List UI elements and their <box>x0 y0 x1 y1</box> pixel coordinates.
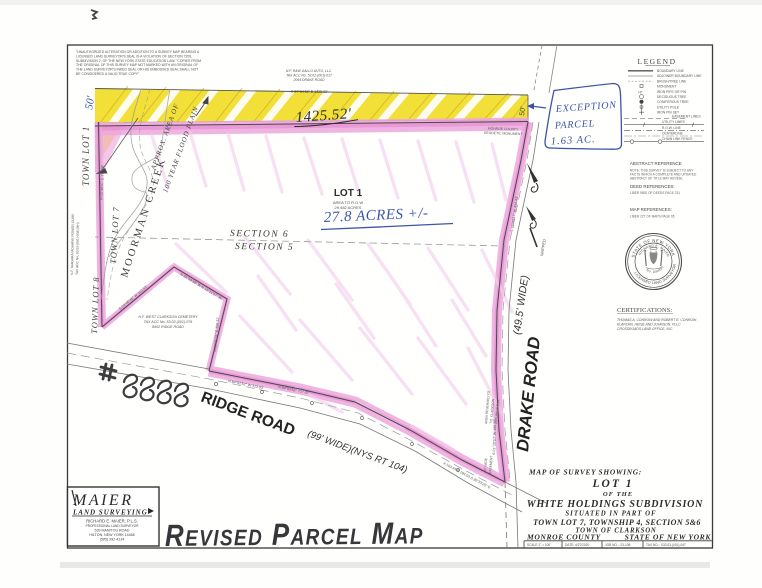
svg-text:LIBER 9892 OF DEEDS PAGE 231: LIBER 9892 OF DEEDS PAGE 231 <box>630 191 680 195</box>
svg-text:SITUATED IN PART OF: SITUATED IN PART OF <box>565 511 656 518</box>
svg-text:KLAFEHN, HEISE AND JOHNSON, PL: KLAFEHN, HEISE AND JOHNSON, PLLC <box>617 323 681 327</box>
svg-text:CHAIN LINK FENCE: CHAIN LINK FENCE <box>662 137 693 141</box>
svg-text:TOWN LOT 7, TOWNSHIP 4, S: TOWN LOT 7, TOWNSHIP 4, SECTION 5&6 <box>533 518 701 527</box>
svg-text:IRON PIPE OR PIN: IRON PIPE OR PIN <box>657 90 687 94</box>
svg-text:THE ORIGINAL OF THIS SURVEY MA: THE ORIGINAL OF THIS SURVEY MAP NOT MARK… <box>76 63 198 67</box>
svg-text:MAP OF SURVEY SHOWING:: MAP OF SURVEY SHOWING: <box>528 468 642 477</box>
svg-text:PARCEL: PARCEL <box>554 118 596 131</box>
svg-text:50': 50' <box>83 95 97 111</box>
svg-text:BRUSH/TREE LINE: BRUSH/TREE LINE <box>657 79 687 83</box>
svg-text:DATE: 4/27/2020: DATE: 4/27/2020 <box>565 543 589 547</box>
svg-text:539 MANITOU ROAD: 539 MANITOU ROAD <box>95 529 130 533</box>
svg-text:8602 RIDGE ROAD: 8602 RIDGE ROAD <box>152 325 184 329</box>
svg-text:ABSTRACT REFERENCE: ABSTRACT REFERENCE <box>630 161 682 166</box>
svg-text:EASEMENT LINES: EASEMENT LINES <box>672 114 701 118</box>
svg-text:BOUNDARY LINE: BOUNDARY LINE <box>657 69 685 73</box>
svg-text:TAX NO. : 033.03-(001)-047: TAX NO. : 033.03-(001)-047 <box>646 543 686 547</box>
svg-text:LAND SURVEYING: LAND SURVEYING <box>72 509 148 517</box>
svg-text:LICENSED LAND SURVEYOR'S SEAL: LICENSED LAND SURVEYOR'S SEAL IS A VIOLA… <box>76 54 192 58</box>
svg-text:2064 DRAKE ROAD: 2064 DRAKE ROAD <box>293 78 325 82</box>
svg-text:THOMAS A. CONROW AND ROBERT E.: THOMAS A. CONROW AND ROBERT E. CONROW , <box>617 318 698 322</box>
svg-text:DECIDUOUS TREE: DECIDUOUS TREE <box>657 95 687 99</box>
svg-text:TOWN LOT 8: TOWN LOT 8 <box>89 276 101 334</box>
svg-text:S 87°54'48" E 1425.52': S 87°54'48" E 1425.52' <box>291 90 328 95</box>
svg-text:MONROE COUNTY: MONROE COUNTY <box>526 533 602 542</box>
svg-text:RICHARD E. MAIER, P.L.S.: RICHARD E. MAIER, P.L.S. <box>86 519 138 524</box>
svg-text:LIBER 227 OF MAPS PAGE 65: LIBER 227 OF MAPS PAGE 65 <box>630 215 675 219</box>
svg-text:BE CONSIDERED A VALID TRUE COP: BE CONSIDERED A VALID TRUE COPY" <box>76 72 140 76</box>
svg-text:UTILITY POLE: UTILITY POLE <box>657 105 680 109</box>
svg-text:I-P: I-P <box>638 91 643 95</box>
svg-text:PROFESSIONAL LAND SURVEYOR: PROFESSIONAL LAND SURVEYOR <box>86 524 139 528</box>
svg-text:SCALE 1" = 100': SCALE 1" = 100' <box>527 543 551 547</box>
svg-text:N.F. WEST CLARKSON CEMETERY: N.F. WEST CLARKSON CEMETERY <box>138 315 198 319</box>
svg-text:(585) 392-4134: (585) 392-4134 <box>100 538 125 542</box>
svg-text:ABSTRACT OF TITLE MAY REVEAL.: ABSTRACT OF TITLE MAY REVEAL. <box>630 177 684 181</box>
svg-text:SECTION 5: SECTION 5 <box>235 242 294 253</box>
svg-text:TAX ACC No. 53.02-(001)-017: TAX ACC No. 53.02-(001)-017 <box>286 74 332 78</box>
svg-text:TAX ACC No. 53.02-(001)-076: TAX ACC No. 53.02-(001)-076 <box>144 320 193 324</box>
svg-text:MONUMENT: MONUMENT <box>657 85 676 89</box>
svg-text:OF THE: OF THE <box>603 491 633 498</box>
svg-text:CERTIFICATIONS:: CERTIFICATIONS: <box>617 307 673 314</box>
svg-text:CENTERLINE: CENTERLINE <box>662 132 684 136</box>
svg-text:"UNAUTHORIZED ALTERATION OR AD: "UNAUTHORIZED ALTERATION OR ADDITION TO … <box>76 50 200 54</box>
svg-text:LOT 1: LOT 1 <box>592 478 634 490</box>
svg-text:DEED REFERENCES:: DEED REFERENCES: <box>630 184 675 189</box>
svg-text:LEGEND: LEGEND <box>638 57 677 66</box>
svg-text:UTILITY LINES: UTILITY LINES <box>662 120 685 124</box>
svg-text:THE LAND SURVEYOR'S INKED SEAL: THE LAND SURVEYOR'S INKED SEAL OR HIS EM… <box>76 68 198 72</box>
svg-text:STATE OF NEW YORK: STATE OF NEW YORK <box>625 533 712 542</box>
svg-text:MAP REFERENCES:: MAP REFERENCES: <box>630 207 672 212</box>
svg-text:LOT 1: LOT 1 <box>334 188 363 199</box>
svg-text:TOWN LOT 1: TOWN LOT 1 <box>81 126 91 186</box>
svg-text:SUBDIVISION 2, OF THE NEW YORK: SUBDIVISION 2, OF THE NEW YORK STATE EDU… <box>76 59 201 63</box>
svg-text:MAIER: MAIER <box>72 492 133 509</box>
svg-text:CONIFEROUS TREE: CONIFEROUS TREE <box>657 100 689 104</box>
svg-text:50': 50' <box>519 106 527 116</box>
svg-text:ADJOINER BOUNDARY LINE: ADJOINER BOUNDARY LINE <box>657 74 702 78</box>
svg-text:JOB NO. : 23-108: JOB NO. : 23-108 <box>605 543 631 547</box>
svg-text:N.F. R&W GALLO AUTO, LLC.: N.F. R&W GALLO AUTO, LLC. <box>286 69 332 73</box>
svg-text:SECTION 6: SECTION 6 <box>230 229 289 240</box>
svg-text:WHITE HOLDINGS SUBDIVISION: WHITE HOLDINGS SUBDIVISION <box>527 499 703 510</box>
svg-text:R.O.W. LINE: R.O.W. LINE <box>662 126 682 130</box>
svg-text:CROSSROADS LAND OFFICE, INC.: CROSSROADS LAND OFFICE, INC. <box>617 327 673 331</box>
svg-text:HILTON, NEW YORK 14468: HILTON, NEW YORK 14468 <box>89 533 134 537</box>
svg-text:1.63 AC.: 1.63 AC. <box>551 134 596 147</box>
